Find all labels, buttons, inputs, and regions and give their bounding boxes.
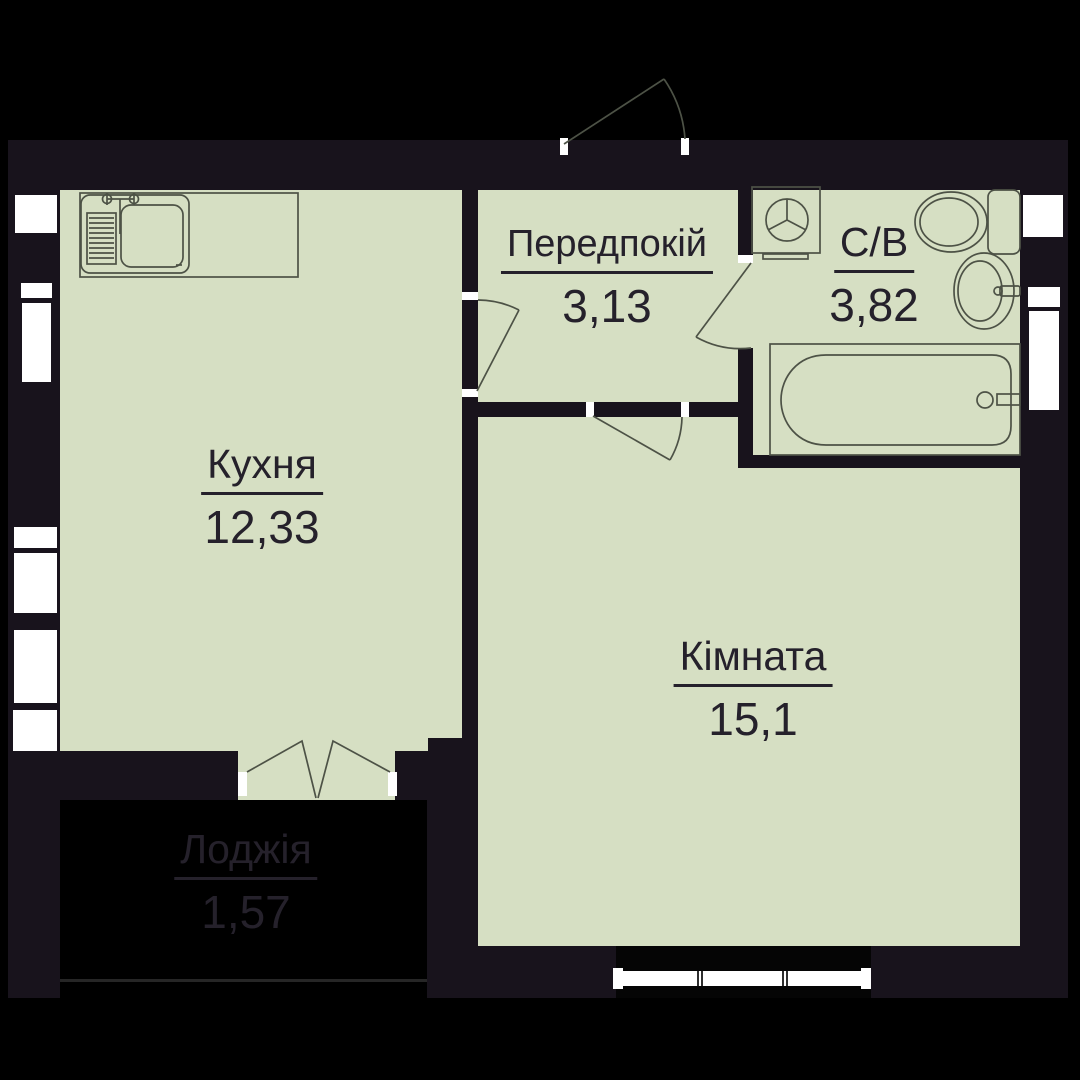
window-icon	[861, 968, 871, 989]
window-icon	[1029, 311, 1059, 410]
wall-top	[8, 140, 1068, 190]
room-area: 15,1	[674, 694, 833, 745]
label-loggia: Лоджія 1,57	[174, 827, 317, 938]
room-area: 12,33	[201, 502, 323, 553]
window-icon	[22, 303, 51, 382]
label-living-room: Кімната 15,1	[674, 634, 833, 745]
room-name: С/В	[834, 220, 914, 273]
room-area: 3,13	[501, 281, 713, 332]
label-bathroom: С/В 3,82	[829, 220, 919, 331]
window-icon	[15, 195, 57, 233]
room-area: 1,57	[174, 887, 317, 938]
floor-plan-drawing	[0, 0, 1080, 1080]
window-icon	[21, 283, 52, 298]
wall-bath-bottom	[738, 455, 1020, 468]
label-kitchen: Кухня 12,33	[201, 442, 323, 553]
window-icon	[13, 710, 57, 751]
window-icon	[14, 630, 57, 703]
label-hallway: Передпокій 3,13	[501, 224, 713, 331]
room-name: Передпокій	[501, 224, 713, 274]
room-name: Кухня	[201, 442, 323, 495]
room-area: 3,82	[829, 280, 919, 331]
wall-kitchen-bottom-left	[60, 751, 238, 800]
window-icon	[1023, 195, 1063, 237]
window-icon	[14, 527, 57, 548]
wall-bath-partition-lower	[738, 348, 753, 468]
wall-kitchen-bottom-right	[395, 751, 478, 800]
window-icon	[14, 553, 57, 613]
window-icon	[613, 971, 871, 986]
floor-plan: Кухня 12,33 Передпокій 3,13 С/В 3,82 Кім…	[0, 0, 1080, 1080]
window-icon	[1028, 287, 1060, 307]
room-name: Лоджія	[174, 827, 317, 880]
wall-loggia-right	[427, 800, 478, 998]
wall-bath-partition-upper	[738, 190, 753, 255]
window-icon	[613, 968, 623, 989]
room-name: Кімната	[674, 634, 833, 687]
wall-kitchen-bottom-step	[428, 738, 478, 751]
loggia-outer-edge	[60, 979, 427, 982]
wall-hallway-bottom	[462, 402, 753, 417]
entrance-door-icon	[564, 79, 685, 144]
